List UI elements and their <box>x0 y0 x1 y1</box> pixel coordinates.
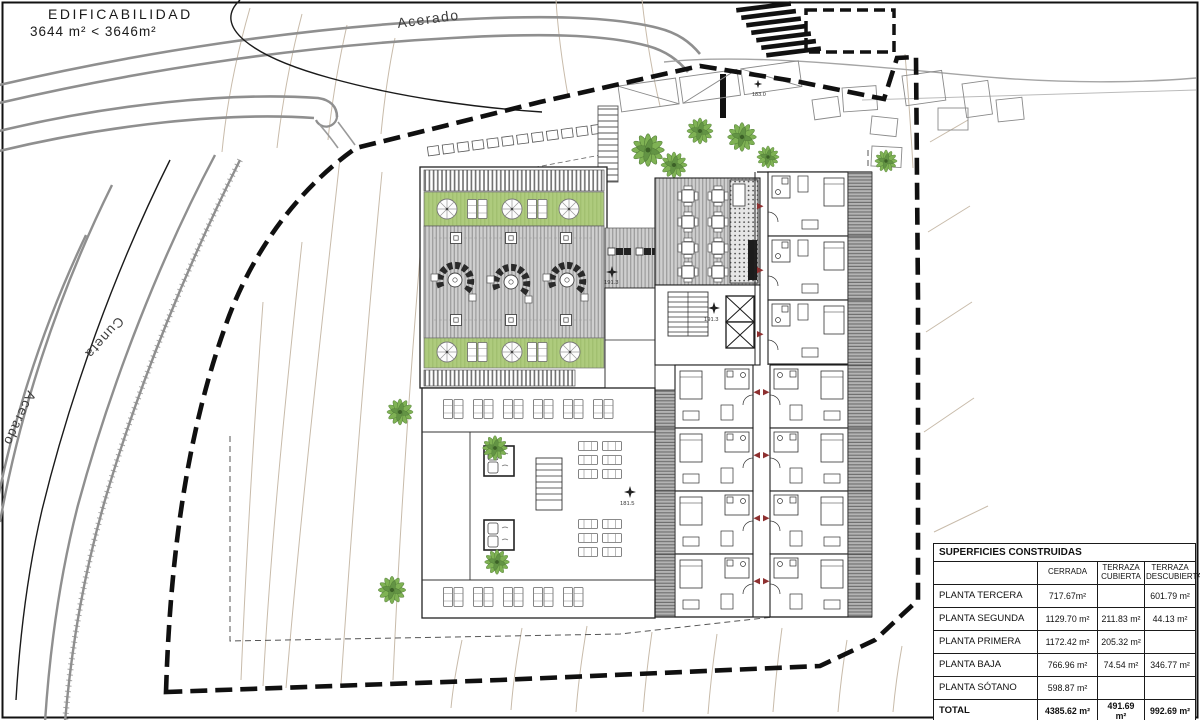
cell-value: 44.13 m² <box>1145 607 1196 630</box>
title-block: EDIFICABILIDAD 3644 m² < 3646m² <box>30 6 193 39</box>
cell-value <box>1098 584 1145 607</box>
table-row: PLANTA SÓTANO 598.87 m² <box>934 676 1196 699</box>
apartment-unit <box>675 365 753 428</box>
balcony-strip-west <box>653 390 675 617</box>
areas-table-title: SUPERFICIES CONSTRUIDAS <box>934 544 1196 562</box>
spa-pool <box>484 520 514 550</box>
balcony-strip-east <box>848 172 872 617</box>
apartment-unit <box>675 554 753 617</box>
apartment-unit <box>768 236 848 300</box>
column-header-terraza-cubierta: TERRAZA CUBIERTA <box>1098 562 1145 585</box>
edificability-formula: 3644 m² < 3646m² <box>30 24 193 39</box>
areas-table: SUPERFICIES CONSTRUIDAS CERRADA TERRAZA … <box>933 543 1196 720</box>
cell-value: 4385.62 m² <box>1038 699 1098 720</box>
row-label: PLANTA TERCERA <box>934 584 1038 607</box>
site-plan-sheet: Acerado Cuneta Acerado <box>0 0 1200 720</box>
cell-value: 1129.70 m² <box>1038 607 1098 630</box>
apartment-unit <box>770 491 848 554</box>
cell-value: 74.54 m² <box>1098 653 1145 676</box>
road-label-acerado-top: Acerado <box>396 6 460 31</box>
table-header-row: CERRADA TERRAZA CUBIERTA TERRAZA DESCUBI… <box>934 562 1196 585</box>
existing-structure-dashed <box>806 10 894 52</box>
column-header-empty <box>934 562 1038 585</box>
existing-structures <box>618 61 1024 168</box>
cuneta-line <box>65 160 240 720</box>
table-row: PLANTA BAJA 766.96 m² 74.54 m² 346.77 m² <box>934 653 1196 676</box>
level-marker-pool: 181.5 <box>620 501 635 507</box>
roof-terrace <box>420 167 607 388</box>
entry-marker: 183.0 <box>752 80 766 98</box>
apartment-unit <box>768 172 848 236</box>
level-marker-roof: 191.3 <box>604 280 619 286</box>
apartment-unit <box>770 428 848 491</box>
cell-value: 491.69 m² <box>1098 699 1145 720</box>
cell-value: 992.69 m² <box>1145 699 1196 720</box>
table-row: PLANTA SEGUNDA 1129.70 m² 211.83 m² 44.1… <box>934 607 1196 630</box>
elevator-shafts <box>726 296 754 348</box>
cell-value: 1172.42 m² <box>1038 630 1098 653</box>
column-header-terraza-descubierta: TERRAZA DESCUBIERTA <box>1145 562 1196 585</box>
cell-value: 717.67m² <box>1038 584 1098 607</box>
row-label: PLANTA SEGUNDA <box>934 607 1038 630</box>
level-marker-core: 191.3 <box>704 317 719 323</box>
table-row: PLANTA TERCERA 717.67m² 601.79 m² <box>934 584 1196 607</box>
table-row-total: TOTAL 4385.62 m² 491.69 m² 992.69 m² <box>934 699 1196 720</box>
back-of-house <box>605 288 655 388</box>
road-label-cuneta: Cuneta <box>82 314 127 362</box>
row-label-total: TOTAL <box>934 699 1038 720</box>
parking-box-row <box>427 124 603 156</box>
building-complex: 191.3 191.3 <box>420 167 872 618</box>
apartment-unit <box>768 300 848 364</box>
cell-value: 211.83 m² <box>1098 607 1145 630</box>
table-row: PLANTA PRIMERA 1172.42 m² 205.32 m² <box>934 630 1196 653</box>
cell-value: 205.32 m² <box>1098 630 1145 653</box>
elevator-core: 191.3 <box>655 285 760 365</box>
cell-value <box>1145 630 1196 653</box>
connector-deck: 191.3 <box>604 228 659 288</box>
row-label: PLANTA BAJA <box>934 653 1038 676</box>
cell-value: 601.79 m² <box>1145 584 1196 607</box>
cell-value: 598.87 m² <box>1038 676 1098 699</box>
edificability-title: EDIFICABILIDAD <box>48 6 193 22</box>
cell-value: 346.77 m² <box>1145 653 1196 676</box>
row-label: PLANTA PRIMERA <box>934 630 1038 653</box>
apartment-unit <box>675 428 753 491</box>
cell-value <box>1098 676 1145 699</box>
level-marker-entry: 183.0 <box>752 92 766 98</box>
column-header-cerrada: CERRADA <box>1038 562 1098 585</box>
apartment-unit <box>675 491 753 554</box>
apartment-unit <box>770 365 848 428</box>
road-label-acerado-left: Acerado <box>0 389 38 449</box>
cell-value: 766.96 m² <box>1038 653 1098 676</box>
cell-value <box>1145 676 1196 699</box>
apartment-unit <box>770 554 848 617</box>
pool-deck: 181.5 <box>422 388 655 618</box>
row-label: PLANTA SÓTANO <box>934 676 1038 699</box>
dining-terrace <box>655 178 760 285</box>
wall-bar <box>720 74 726 118</box>
